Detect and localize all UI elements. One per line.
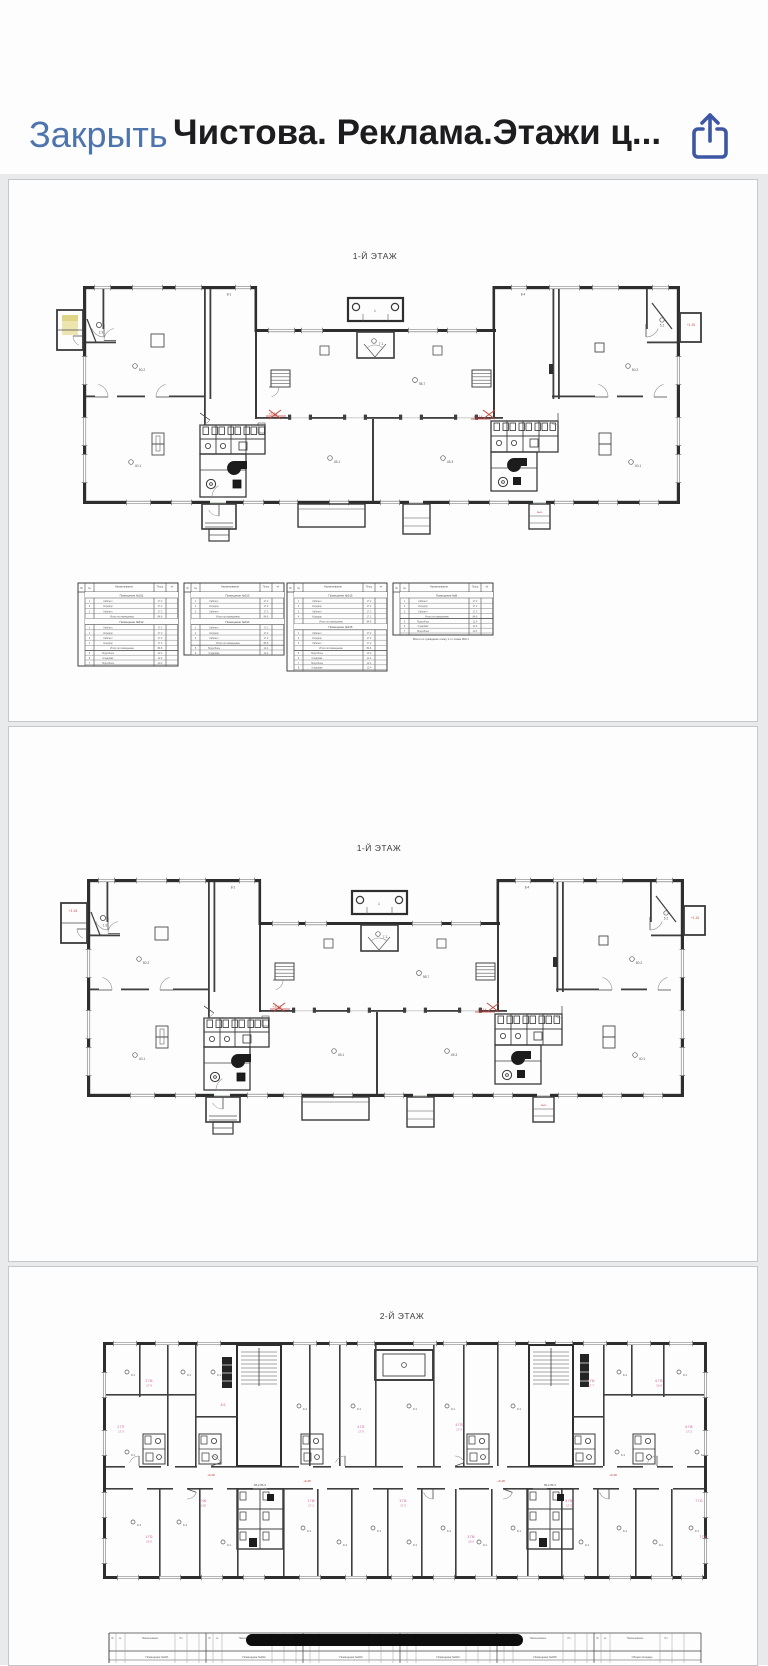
svg-text:Коридор: Коридор: [312, 637, 322, 640]
svg-text:+6.28: +6.28: [303, 1479, 311, 1483]
svg-text:Кабинет: Кабинет: [312, 610, 322, 613]
svg-text:1: 1: [195, 627, 197, 630]
svg-text:9.1: 9.1: [217, 1373, 222, 1377]
svg-text:Подсобное: Подсобное: [311, 652, 324, 655]
svg-text:1: 1: [378, 902, 380, 906]
svg-text:17.2: 17.2: [264, 605, 269, 608]
svg-text:6 П4: 6 П4: [587, 1379, 594, 1383]
svg-text:17.3: 17.3: [118, 1430, 124, 1434]
svg-text:Кладовая: Кладовая: [312, 657, 323, 660]
svg-text:3 П4: 3 П4: [399, 1499, 406, 1503]
svg-text:Площ: Площ: [263, 586, 269, 589]
svg-text:17.2: 17.2: [158, 632, 163, 635]
svg-text:50.2: 50.2: [139, 368, 146, 372]
svg-text:Итого по помещению: Итого по помещению: [110, 647, 134, 650]
svg-text:Наименование: Наименование: [115, 585, 134, 589]
svg-text:1: 1: [195, 600, 197, 603]
svg-text:Помещение №024: Помещение №024: [436, 1655, 460, 1659]
svg-text:1 П2: 1 П2: [145, 1535, 152, 1539]
svg-text:12.4: 12.4: [158, 652, 163, 655]
svg-text:Коридор: Коридор: [418, 605, 428, 608]
svg-text:17.9: 17.9: [146, 1384, 152, 1388]
svg-text:Кабинет: Кабинет: [418, 600, 428, 603]
svg-text:+1.15: +1.15: [691, 916, 699, 920]
svg-text:5: 5: [404, 620, 406, 623]
svg-text:8-4: 8-4: [521, 293, 526, 297]
svg-text:9.1: 9.1: [307, 1529, 312, 1533]
svg-text:Кабинет: Кабинет: [312, 632, 322, 635]
svg-text:2 П7: 2 П7: [117, 1425, 124, 1429]
svg-text:17.0: 17.0: [566, 1504, 572, 1508]
svg-text:8b.2 8b.3: 8b.2 8b.3: [254, 1483, 266, 1487]
svg-text:6 П6: 6 П6: [685, 1425, 692, 1429]
svg-text:м²: м²: [277, 586, 280, 589]
svg-text:3: 3: [298, 642, 300, 645]
svg-text:5: 5: [195, 647, 197, 650]
svg-text:4: 4: [89, 642, 91, 645]
svg-text:Кладовая: Кладовая: [418, 625, 429, 628]
svg-text:Пл: Пл: [567, 1637, 571, 1640]
svg-text:1.9: 1.9: [99, 331, 104, 335]
svg-text:9.1: 9.1: [343, 1543, 348, 1547]
svg-text:9.1: 9.1: [517, 1407, 522, 1411]
svg-text:12.4: 12.4: [473, 625, 478, 628]
svg-text:Подсобное: Подсобное: [417, 630, 430, 633]
svg-text:45.3: 45.3: [447, 460, 454, 464]
svg-text:17.2: 17.2: [264, 610, 269, 613]
svg-text:Коридор: Коридор: [103, 605, 113, 608]
svg-text:Кабинет: Кабинет: [209, 600, 219, 603]
svg-text:Помещение №023: Помещение №023: [339, 1655, 363, 1659]
svg-text:17.2: 17.2: [367, 600, 372, 603]
svg-text:Помещение №013: Помещение №013: [226, 593, 250, 597]
svg-text:2: 2: [298, 605, 300, 608]
svg-text:40.1: 40.1: [139, 1057, 146, 1061]
svg-text:9.1: 9.1: [413, 1407, 418, 1411]
svg-text:9.1: 9.1: [659, 1543, 664, 1547]
svg-text:Помещение №014: Помещение №014: [226, 620, 250, 624]
svg-text:Общая площадь: Общая площадь: [632, 1655, 653, 1659]
svg-text:8-1: 8-1: [231, 886, 236, 890]
svg-text:Коридор: Коридор: [312, 616, 322, 619]
svg-text:2: 2: [298, 637, 300, 640]
svg-text:Эт: Эт: [111, 1637, 115, 1640]
svg-text:9.1: 9.1: [517, 1529, 522, 1533]
svg-text:Площ: Площ: [366, 586, 372, 589]
svg-text:№: №: [88, 587, 91, 590]
svg-text:Наименование: Наименование: [530, 1637, 547, 1640]
svg-text:1: 1: [298, 632, 300, 635]
svg-text:98.7: 98.7: [419, 382, 426, 386]
svg-text:17.2: 17.2: [158, 605, 163, 608]
svg-text:17.2: 17.2: [473, 600, 478, 603]
svg-text:Эт: Эт: [395, 586, 399, 590]
svg-text:9.1: 9.1: [621, 1453, 626, 1457]
svg-text:2: 2: [404, 605, 406, 608]
svg-text:84.6: 84.6: [473, 615, 478, 618]
svg-text:7.1: 7.1: [383, 935, 388, 939]
svg-text:3: 3: [195, 637, 197, 640]
svg-text:17.4: 17.4: [456, 1428, 462, 1432]
svg-text:вых.: вых.: [537, 510, 543, 514]
svg-text:№: №: [119, 1637, 122, 1640]
svg-text:16.5: 16.5: [146, 1540, 152, 1544]
svg-text:3: 3: [89, 637, 91, 640]
svg-text:+6.28: +6.28: [207, 1473, 215, 1477]
svg-text:3: 3: [195, 610, 197, 613]
svg-text:8b.2 8b.3: 8b.2 8b.3: [544, 1483, 556, 1487]
svg-text:17.2: 17.2: [158, 627, 163, 630]
svg-text:16.8: 16.8: [656, 1384, 662, 1388]
svg-text:1 П8: 1 П8: [307, 1499, 314, 1503]
svg-text:17.2: 17.2: [264, 600, 269, 603]
svg-text:Кабинет: Кабинет: [312, 642, 322, 645]
svg-text:84.6: 84.6: [367, 621, 372, 624]
svg-text:Помещение №015: Помещение №015: [329, 593, 353, 597]
svg-text:2: 2: [195, 632, 197, 635]
svg-text:Помещение №025: Помещение №025: [533, 1655, 557, 1659]
svg-text:4: 4: [298, 616, 300, 619]
svg-text:12.4: 12.4: [367, 657, 372, 660]
svg-text:9.1: 9.1: [585, 1543, 590, 1547]
svg-text:1: 1: [89, 600, 91, 603]
svg-text:9.1: 9.1: [623, 1529, 628, 1533]
svg-text:+3.14: +3.14: [473, 415, 482, 419]
svg-text:№: №: [604, 1637, 607, 1640]
svg-text:98.7: 98.7: [423, 975, 430, 979]
svg-text:1-Й ЭТАЖ: 1-Й ЭТАЖ: [353, 250, 398, 261]
svg-text:12.4: 12.4: [158, 662, 163, 665]
svg-text:+6.28: +6.28: [609, 1473, 617, 1477]
svg-text:5.2: 5.2: [664, 917, 669, 921]
svg-text:9.1: 9.1: [447, 1529, 452, 1533]
svg-text:Подсобное: Подсобное: [102, 652, 115, 655]
svg-text:7: 7: [298, 662, 300, 665]
svg-text:9.1: 9.1: [131, 1453, 136, 1457]
svg-text:Кабинет: Кабинет: [103, 610, 113, 613]
svg-text:вых.: вых.: [541, 1103, 547, 1107]
svg-text:Кабинет: Кабинет: [103, 627, 113, 630]
svg-text:6 П5: 6 П5: [655, 1379, 662, 1383]
svg-text:9.1: 9.1: [227, 1543, 232, 1547]
svg-text:17.2: 17.2: [367, 632, 372, 635]
svg-text:12.4: 12.4: [158, 657, 163, 660]
svg-text:2.05: 2.05: [200, 1504, 206, 1508]
svg-text:4 П2: 4 П2: [357, 1425, 364, 1429]
svg-text:Площ: Площ: [157, 586, 163, 589]
svg-text:9.1: 9.1: [683, 1373, 688, 1377]
svg-text:№: №: [403, 587, 406, 590]
svg-text:17.2: 17.2: [367, 616, 372, 619]
svg-text:12.4: 12.4: [367, 652, 372, 655]
svg-text:17.5: 17.5: [400, 1504, 406, 1508]
svg-text:12.4: 12.4: [264, 647, 269, 650]
svg-text:9.1: 9.1: [187, 1373, 192, 1377]
svg-text:84.6: 84.6: [158, 647, 163, 650]
svg-text:Помещение №012: Помещение №012: [120, 620, 144, 624]
svg-text:1: 1: [298, 600, 300, 603]
svg-text:Коридор: Коридор: [209, 605, 219, 608]
svg-text:45.3: 45.3: [451, 1053, 458, 1057]
svg-text:Кладовая: Кладовая: [209, 652, 220, 655]
svg-text:Помещение №В: Помещение №В: [436, 593, 457, 597]
svg-text:17.2: 17.2: [264, 632, 269, 635]
svg-text:№: №: [297, 587, 300, 590]
svg-text:Итого по помещению: Итого по помещению: [319, 647, 343, 650]
svg-text:Кабинет: Кабинет: [209, 610, 219, 613]
svg-text:45.1: 45.1: [334, 460, 341, 464]
svg-text:Подсобное: Подсобное: [102, 662, 115, 665]
svg-text:9.1: 9.1: [701, 1453, 706, 1457]
svg-text:+1.15: +1.15: [69, 909, 78, 913]
svg-text:3: 3: [404, 610, 406, 613]
svg-text:3 П6: 3 П6: [467, 1535, 474, 1539]
svg-text:5.2: 5.2: [660, 324, 665, 328]
svg-text:8: 8: [298, 667, 300, 670]
svg-text:Пл: Пл: [664, 1637, 668, 1640]
svg-text:1-Й ЭТАЖ: 1-Й ЭТАЖ: [357, 842, 402, 853]
svg-text:17.2: 17.2: [367, 642, 372, 645]
svg-text:17.2: 17.2: [473, 610, 478, 613]
svg-text:50.2: 50.2: [632, 368, 639, 372]
svg-text:Наименование: Наименование: [142, 1637, 159, 1640]
svg-text:9.1: 9.1: [137, 1523, 142, 1527]
svg-text:Всего по гражданке этажу 1-го: Всего по гражданке этажу 1-го этажа 960.…: [413, 637, 469, 641]
svg-text:Помещение №011: Помещение №011: [120, 593, 144, 597]
svg-text:12.4: 12.4: [367, 667, 372, 670]
svg-text:6: 6: [404, 625, 406, 628]
svg-text:17.2: 17.2: [367, 605, 372, 608]
svg-text:Площ: Площ: [472, 586, 478, 589]
svg-text:м²: м²: [171, 586, 174, 589]
svg-text:+3.14: +3.14: [477, 1008, 486, 1012]
svg-text:17.2: 17.2: [686, 1430, 692, 1434]
svg-text:9.1: 9.1: [623, 1373, 628, 1377]
svg-text:45.1: 45.1: [338, 1053, 345, 1057]
svg-text:Помещение №016: Помещение №016: [329, 625, 353, 629]
svg-text:40.1: 40.1: [635, 464, 642, 468]
svg-text:17.2: 17.2: [158, 600, 163, 603]
svg-text:+6.28: +6.28: [497, 1479, 505, 1483]
svg-text:9.1: 9.1: [357, 1407, 362, 1411]
svg-text:Наименование: Наименование: [221, 585, 240, 589]
svg-text:Пл: Пл: [179, 1637, 183, 1640]
svg-text:17.6: 17.6: [358, 1430, 364, 1434]
svg-text:Эт: Эт: [596, 1637, 600, 1640]
svg-text:Подсобное: Подсобное: [311, 662, 324, 665]
svg-text:12.4: 12.4: [264, 652, 269, 655]
svg-text:17.2: 17.2: [264, 627, 269, 630]
svg-text:2: 2: [195, 605, 197, 608]
svg-text:8.5: 8.5: [221, 1403, 226, 1407]
svg-text:17.2: 17.2: [158, 610, 163, 613]
svg-text:Эт: Эт: [80, 586, 84, 590]
svg-text:1: 1: [374, 309, 376, 313]
svg-text:50.2: 50.2: [636, 961, 643, 965]
svg-text:5: 5: [298, 652, 300, 655]
svg-text:6: 6: [89, 657, 91, 660]
svg-text:84.6: 84.6: [264, 615, 269, 618]
svg-text:Помещение №022: Помещение №022: [242, 1655, 266, 1659]
svg-text:12.4: 12.4: [473, 630, 478, 633]
svg-text:Итого по помещению: Итого по помещению: [319, 621, 343, 624]
svg-text:2: 2: [89, 632, 91, 635]
svg-text:8-4: 8-4: [525, 886, 530, 890]
svg-text:17.2: 17.2: [158, 642, 163, 645]
svg-text:12.4: 12.4: [473, 620, 478, 623]
svg-text:84.6: 84.6: [367, 647, 372, 650]
svg-text:Кладовая: Кладовая: [103, 657, 114, 660]
svg-text:17.2: 17.2: [158, 637, 163, 640]
svg-text:17.2: 17.2: [264, 637, 269, 640]
svg-text:Наименование: Наименование: [324, 585, 343, 589]
svg-text:17.7: 17.7: [588, 1384, 594, 1388]
svg-text:Итого по помещению: Итого по помещению: [425, 615, 449, 618]
svg-text:Кладовая: Кладовая: [312, 667, 323, 670]
svg-text:Коридор: Коридор: [209, 632, 219, 635]
svg-text:2.06: 2.06: [200, 1499, 207, 1503]
svg-text:м²: м²: [486, 586, 489, 589]
svg-text:Кабинет: Кабинет: [103, 600, 113, 603]
svg-text:Кабинет: Кабинет: [209, 627, 219, 630]
svg-text:50.2: 50.2: [143, 961, 150, 965]
svg-text:6: 6: [195, 652, 197, 655]
svg-text:5 П6: 5 П6: [565, 1499, 572, 1503]
svg-text:9.1: 9.1: [303, 1407, 308, 1411]
svg-text:12.4: 12.4: [367, 662, 372, 665]
svg-text:Кабинет: Кабинет: [103, 637, 113, 640]
svg-text:Коридор: Коридор: [103, 642, 113, 645]
svg-text:Эт: Эт: [186, 586, 190, 590]
svg-text:17.2: 17.2: [367, 610, 372, 613]
svg-text:9.1: 9.1: [483, 1543, 488, 1547]
svg-text:1: 1: [89, 627, 91, 630]
svg-text:Кабинет: Кабинет: [209, 637, 219, 640]
svg-text:+1.15: +1.15: [687, 323, 695, 327]
svg-text:2: 2: [89, 605, 91, 608]
svg-text:м²: м²: [380, 586, 383, 589]
svg-text:Наименование: Наименование: [430, 585, 449, 589]
svg-text:40.1: 40.1: [639, 1057, 646, 1061]
svg-text:7: 7: [404, 630, 406, 633]
svg-text:9.1: 9.1: [695, 1529, 700, 1533]
svg-text:4 П3: 4 П3: [455, 1423, 462, 1427]
svg-text:8-1: 8-1: [227, 293, 232, 297]
svg-text:3: 3: [89, 610, 91, 613]
svg-text:Наименование: Наименование: [627, 1637, 644, 1640]
svg-text:Помещение №021: Помещение №021: [145, 1655, 169, 1659]
svg-text:9.1: 9.1: [183, 1523, 188, 1527]
svg-text:6: 6: [298, 657, 300, 660]
svg-text:№: №: [194, 587, 197, 590]
svg-text:17.1: 17.1: [308, 1504, 314, 1508]
svg-text:Коридор: Коридор: [312, 605, 322, 608]
svg-text:5: 5: [89, 652, 91, 655]
svg-text:40.1: 40.1: [135, 464, 142, 468]
svg-text:9.1: 9.1: [451, 1407, 456, 1411]
svg-text:9.1: 9.1: [131, 1373, 136, 1377]
svg-text:7 П2: 7 П2: [695, 1499, 702, 1503]
svg-text:№: №: [216, 1637, 219, 1640]
svg-text:2-Й ЭТАЖ: 2-Й ЭТАЖ: [380, 1310, 425, 1321]
svg-text:Подсобное: Подсобное: [417, 620, 430, 623]
svg-text:16.9: 16.9: [468, 1540, 474, 1544]
svg-text:7 П4: 7 П4: [699, 1535, 706, 1539]
svg-text:84.6: 84.6: [264, 642, 269, 645]
svg-text:Кабинет: Кабинет: [312, 600, 322, 603]
svg-text:1: 1: [404, 600, 406, 603]
svg-text:3: 3: [298, 610, 300, 613]
svg-text:2 П6: 2 П6: [145, 1379, 152, 1383]
svg-text:Подсобное: Подсобное: [208, 647, 221, 650]
svg-text:Эт: Эт: [289, 586, 293, 590]
svg-text:Коридор: Коридор: [103, 632, 113, 635]
svg-text:Кабинет: Кабинет: [418, 610, 428, 613]
svg-text:Итого по помещению: Итого по помещению: [216, 615, 240, 618]
svg-text:17.2: 17.2: [473, 605, 478, 608]
svg-text:1.9: 1.9: [103, 924, 108, 928]
svg-text:84.6: 84.6: [158, 615, 163, 618]
svg-text:7: 7: [89, 662, 91, 665]
svg-text:17.2: 17.2: [367, 637, 372, 640]
svg-text:7.1: 7.1: [379, 342, 384, 346]
svg-text:Итого по помещению: Итого по помещению: [110, 615, 134, 618]
svg-text:9.1: 9.1: [377, 1529, 382, 1533]
svg-text:Итого по помещению: Итого по помещению: [216, 642, 240, 645]
svg-text:9.1: 9.1: [413, 1543, 418, 1547]
svg-text:Эт: Эт: [208, 1637, 212, 1640]
